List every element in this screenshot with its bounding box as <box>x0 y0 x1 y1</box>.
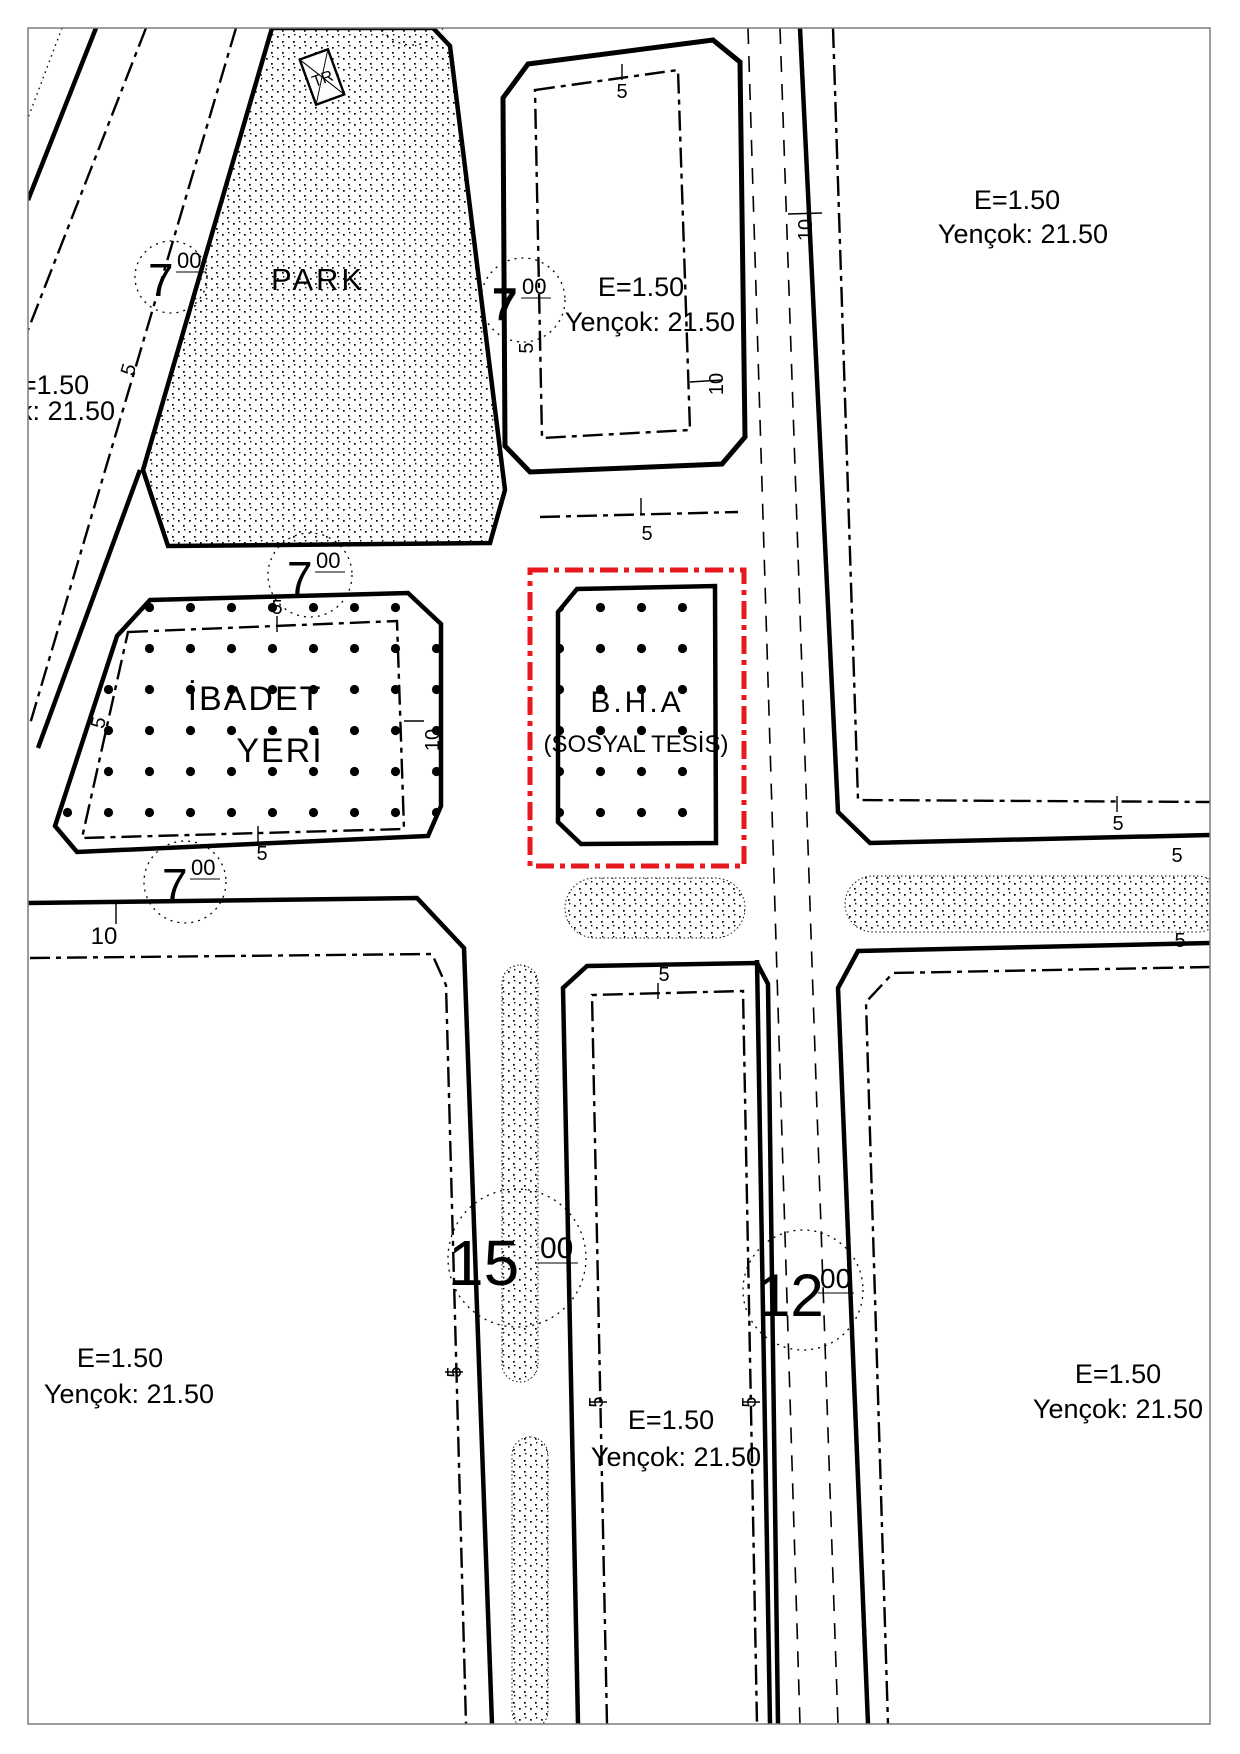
setback-dim-label: 5 <box>1171 845 1182 867</box>
marker-value: 15 <box>448 1227 519 1299</box>
road-width-marker-7: 7 00 <box>144 841 226 923</box>
offset-dim-label: 10 <box>422 729 444 751</box>
plan-limit-dotted-line <box>28 28 62 118</box>
setback-dim-label: 5 <box>256 843 267 865</box>
bha-zone: B.H.A (SOSYAL TESİS) 5 <box>530 498 744 866</box>
setback-dim-label: 5 <box>641 523 652 545</box>
zoning-note-yencok: Yençok: 21.50 <box>591 1442 761 1472</box>
road-edge-line <box>800 28 1210 843</box>
zoning-note-yencok: Yençok: 21.50 <box>1033 1394 1203 1424</box>
marker-value: 12 <box>757 1262 824 1329</box>
marker-value: 7 <box>162 859 188 911</box>
marker-value: 7 <box>148 254 174 306</box>
parcel-top-middle: 5 5 10 E=1.50 Yençok: 21.50 <box>503 40 745 472</box>
setback-dashdot-line <box>30 954 466 1724</box>
bha-label: B.H.A <box>590 686 683 719</box>
block-bottom-right: E=1.50 Yençok: 21.50 <box>866 967 1210 1724</box>
zoning-note-yencok: Yençok: 21.50 <box>565 307 735 337</box>
ibadet-yeri-zone: 5 5 5 10 İBADET YERİ <box>55 593 444 865</box>
setback-dim-label: 5 <box>739 1396 761 1407</box>
ibadet-parcel-boundary <box>55 593 441 852</box>
zoning-note-e: E=1.50 <box>77 1343 163 1373</box>
marker-value: 7 <box>287 552 313 604</box>
median-island <box>845 876 1225 932</box>
zoning-note-e: E=1.50 <box>974 185 1060 215</box>
zoning-note-e: E=1.50 <box>1075 1359 1161 1389</box>
median-island <box>502 965 538 1382</box>
zoning-note-yencok: Yençok: 21.50 <box>938 219 1108 249</box>
marker-decimals: 00 <box>522 274 546 299</box>
cadastral-dashdot-line <box>28 28 146 330</box>
parcel-boundary <box>503 40 745 472</box>
marker-decimals: 00 <box>316 548 340 573</box>
setback-dim-label: 5 <box>586 1396 608 1407</box>
zoning-note-e: E=1.50 <box>628 1405 714 1435</box>
offset-dim-label: 10 <box>795 219 817 241</box>
ibadet-label-line1: İBADET <box>188 680 323 718</box>
plan-sheet: 5 PARK TR 5 5 10 E=1.50 Yençok: 21.50 <box>0 0 1240 1754</box>
lane-dashed-line <box>780 28 838 1724</box>
setback-dim-label: 5 <box>658 964 669 986</box>
marker-decimals: 00 <box>820 1263 851 1294</box>
block-bottom-left: 10 5 E=1.50 Yençok: 21.50 <box>28 898 492 1724</box>
offset-dim-label: 10 <box>706 373 728 395</box>
marker-decimals: 00 <box>540 1232 573 1265</box>
setback-dim-label: 5 <box>444 1366 466 1377</box>
park-zone: PARK TR <box>143 0 505 546</box>
road-edge-line <box>28 28 96 200</box>
ibadet-label-line2: YERİ <box>236 732 323 770</box>
median-island <box>565 878 745 938</box>
zoning-map: 5 PARK TR 5 5 10 E=1.50 Yençok: 21.50 <box>0 0 1240 1754</box>
setback-dashdot-line <box>833 28 1210 802</box>
setback-dim-label: 5 <box>516 342 538 353</box>
cadastral-dashdot-line <box>540 512 738 517</box>
median-island <box>512 1437 548 1729</box>
road-edge-line <box>838 943 1210 1724</box>
setback-dim-label: 5 <box>1112 813 1123 835</box>
setback-dim-label: 5 <box>1174 930 1185 952</box>
zoning-note-yencok-clipped: Yençok: 21.50 <box>0 396 115 426</box>
setback-dim-label: 5 <box>271 597 282 619</box>
park-label: PARK <box>271 262 365 297</box>
bha-sublabel: (SOSYAL TESİS) <box>544 731 729 758</box>
marker-decimals: 00 <box>177 248 201 273</box>
road-edge-line <box>28 898 492 1724</box>
setback-dashdot-line <box>866 967 1210 1724</box>
parcel-bottom-middle: 5 5 5 E=1.50 Yençok: 21.50 <box>563 963 778 1724</box>
zoning-note-yencok: Yençok: 21.50 <box>44 1379 214 1409</box>
setback-dashdot-line <box>592 991 757 1724</box>
setback-dim-label: 5 <box>616 81 627 103</box>
offset-dim-label: 10 <box>91 923 118 950</box>
dim-tick <box>788 213 822 214</box>
marker-value: 7 <box>492 278 518 330</box>
zoning-note-e: E=1.50 <box>598 272 684 302</box>
marker-decimals: 00 <box>191 855 215 880</box>
